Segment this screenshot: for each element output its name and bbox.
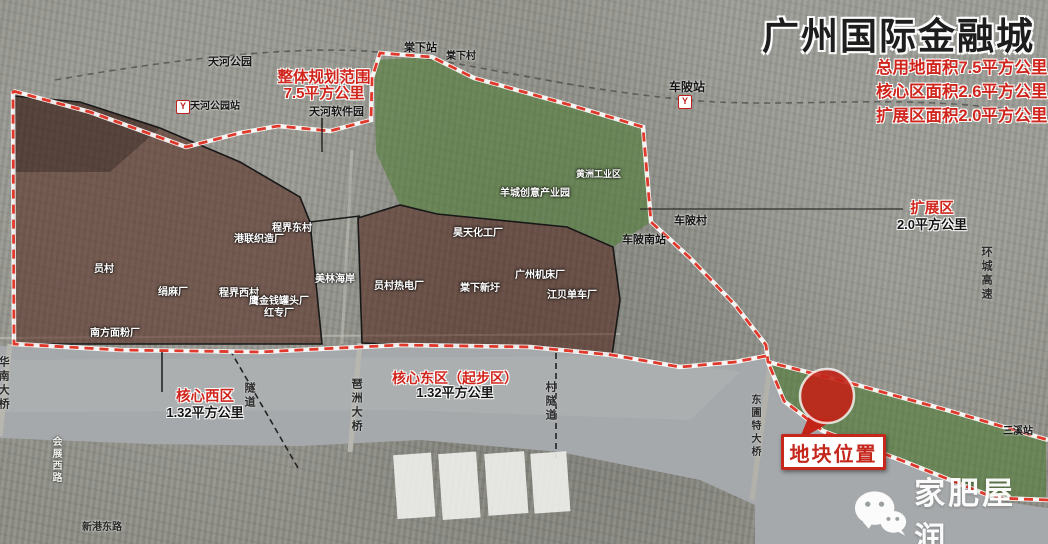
watermark-text: 家肥屋润	[914, 468, 1048, 544]
core-west-name: 核心西区	[155, 390, 255, 406]
exhibition-buildings	[393, 443, 570, 523]
expansion-name: 扩展区	[892, 202, 972, 218]
map-label: 红专厂	[264, 308, 294, 319]
core-west-area: 1.32平方公里	[155, 406, 255, 420]
map-label: 员村	[94, 264, 114, 275]
stat-total-area: 总用地面积7.5平方公里	[876, 56, 1047, 80]
map-label: 绢麻厂	[158, 287, 188, 298]
map-label: 天河公园站	[190, 101, 240, 112]
map-label: 三溪站	[1003, 426, 1033, 437]
metro-icon: Y	[176, 100, 190, 114]
planning-scope-title: 整体规划范围	[262, 69, 386, 86]
area-stats: 总用地面积7.5平方公里 核心区面积2.6平方公里 扩展区面积2.0平方公里	[876, 56, 1047, 128]
map-label: 天河软件园	[309, 106, 364, 118]
financial-city-map: 广州国际金融城 总用地面积7.5平方公里 核心区面积2.6平方公里 扩展区面积2…	[0, 0, 1048, 544]
core-east-area: 1.32平方公里	[380, 386, 530, 400]
watermark: 家肥屋润	[853, 468, 1048, 544]
keyun-road	[342, 150, 352, 344]
map-label: 港联织造厂	[234, 234, 284, 245]
map-label: 鹰金钱罐头厂	[249, 296, 309, 307]
map-label: 会展西路	[50, 436, 61, 484]
map-label: 棠下村	[446, 51, 476, 62]
stat-core-area: 核心区面积2.6平方公里	[876, 80, 1047, 104]
map-label: 羊城创意产业园	[500, 188, 570, 199]
site-location-label: 地块位置	[790, 438, 878, 467]
map-label: 车陂站	[669, 81, 705, 94]
site-marker-circle	[800, 369, 854, 423]
map-label: 广州机床厂	[515, 270, 565, 281]
wechat-icon	[853, 488, 908, 538]
map-label: 华南大桥	[0, 356, 9, 412]
planning-scope-label: 整体规划范围 7.5平方公里	[262, 69, 386, 103]
map-label: 琶洲大桥	[350, 378, 362, 434]
zone-label-expansion: 扩展区 2.0平方公里	[892, 202, 972, 232]
map-label: 村隧道	[544, 381, 556, 423]
map-label: 美林海岸	[315, 274, 355, 285]
map-label: 环城高速	[980, 246, 992, 302]
expansion-area: 2.0平方公里	[892, 218, 972, 232]
map-label: 东圃特大桥	[749, 394, 760, 459]
map-label: 南方面粉厂	[90, 328, 140, 339]
planning-scope-area: 7.5平方公里	[262, 86, 386, 103]
metro-icon: Y	[678, 95, 692, 109]
map-label: 车陂南站	[622, 234, 666, 246]
map-label: 天河公园	[208, 56, 252, 68]
map-label: 昊天化工厂	[453, 228, 503, 239]
stat-expansion-area: 扩展区面积2.0平方公里	[876, 104, 1047, 128]
map-label: 江贝单车厂	[547, 290, 597, 301]
site-location-callout: 地块位置	[781, 434, 886, 470]
map-label: 新港东路	[82, 522, 122, 533]
map-label: 黄洲工业区	[576, 170, 621, 180]
page-title: 广州国际金融城	[762, 6, 1035, 60]
zone-label-core-east: 核心东区（起步区） 1.32平方公里	[380, 371, 530, 401]
map-label: 员村热电厂	[374, 281, 424, 292]
map-label: 隧道	[243, 382, 255, 410]
map-label: 程界东村	[272, 223, 312, 234]
core-link-line	[310, 216, 360, 222]
map-label: 棠下站	[404, 42, 437, 54]
zone-label-core-west: 核心西区 1.32平方公里	[155, 390, 255, 420]
map-label: 棠下新圩	[460, 283, 500, 294]
map-label: 车陂村	[674, 215, 707, 227]
